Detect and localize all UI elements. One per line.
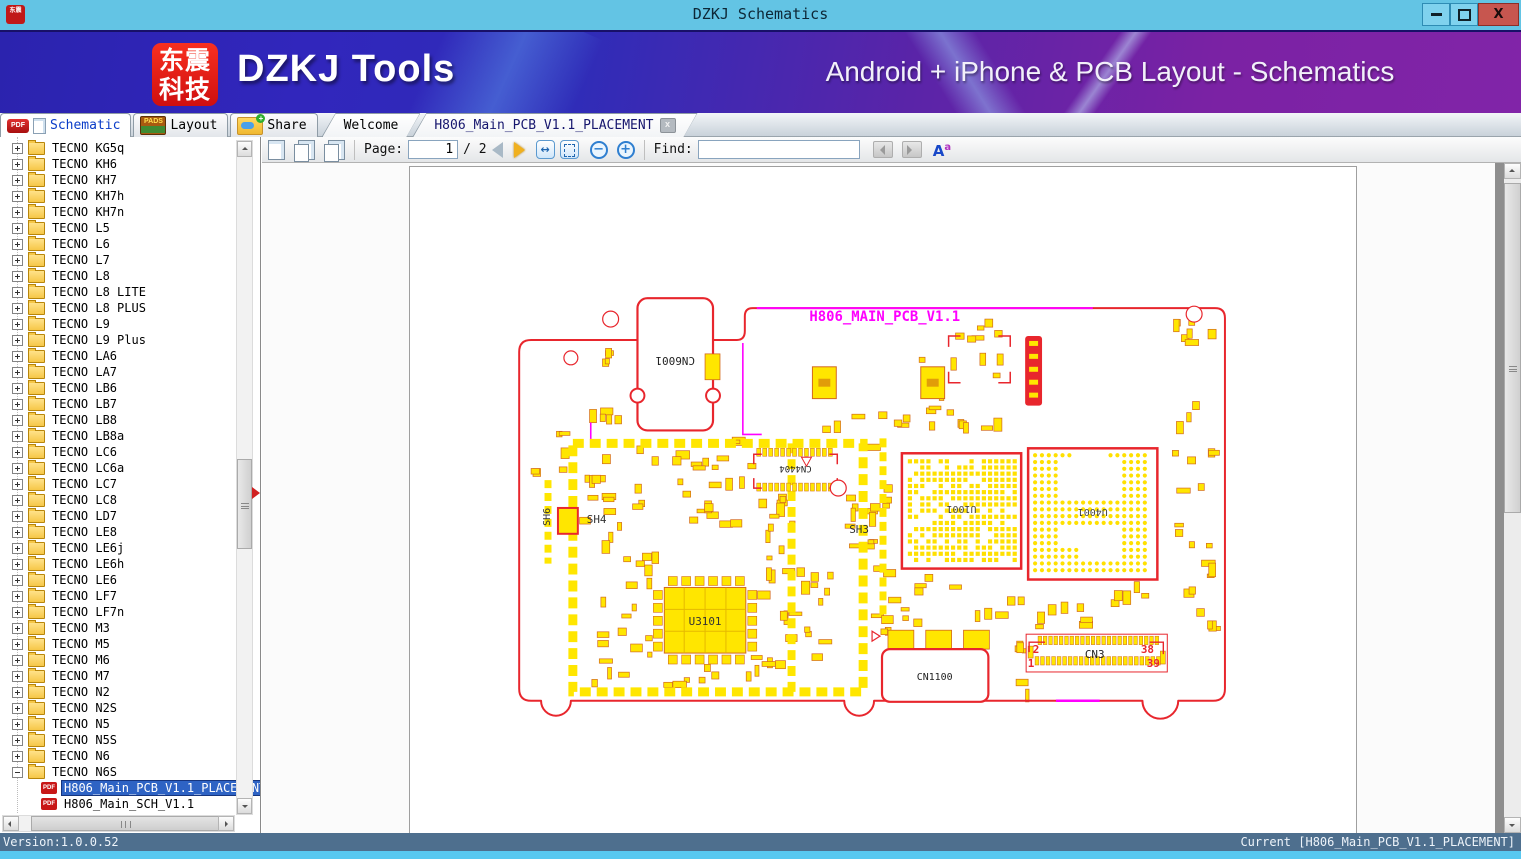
folder-icon — [28, 430, 45, 443]
folder-icon — [28, 542, 45, 555]
expand-icon[interactable] — [12, 159, 23, 170]
rotate-right-icon[interactable] — [328, 140, 345, 160]
folder-label: TECNO LC6 — [50, 445, 119, 459]
folder-icon — [28, 574, 45, 587]
expand-icon[interactable] — [12, 671, 23, 682]
folder-label: TECNO LC6a — [50, 461, 126, 475]
cn3-pin-2: 2 — [1033, 643, 1040, 656]
tree-item-folder[interactable]: TECNO LE8 — [0, 524, 236, 540]
expand-icon[interactable] — [12, 735, 23, 746]
label-cn1100: CN1100 — [917, 672, 953, 683]
folder-label: TECNO LE8 — [50, 525, 119, 539]
viewer-vertical-scrollbar[interactable] — [1504, 163, 1521, 833]
tree-item-folder[interactable]: TECNO KH7h — [0, 188, 236, 204]
previous-page-icon[interactable] — [492, 142, 503, 158]
expand-icon[interactable] — [12, 447, 23, 458]
label-sh4: SH4 — [587, 513, 607, 526]
find-previous-icon[interactable] — [873, 141, 893, 158]
pdf-file-icon: PDF — [41, 782, 57, 794]
expand-icon[interactable] — [12, 319, 23, 330]
viewer-scroll-thumb[interactable] — [1504, 183, 1521, 513]
label-cn3: CN3 — [1085, 648, 1105, 661]
find-label: Find: — [654, 142, 693, 157]
zoom-out-button[interactable]: − — [590, 141, 608, 159]
app-name: DZKJ Tools — [237, 48, 455, 91]
folder-label: TECNO KG5q — [50, 141, 126, 155]
folder-label: TECNO M7 — [50, 669, 112, 683]
folder-label: TECNO LA6 — [50, 349, 119, 363]
maximize-icon — [1458, 9, 1471, 21]
component-sh6-part — [558, 508, 578, 534]
tree-item-folder[interactable]: TECNO L8 PLUS — [0, 300, 236, 316]
folder-label: TECNO L5 — [50, 221, 112, 235]
folder-label: TECNO LD7 — [50, 509, 119, 523]
tree-item-folder[interactable]: TECNO N5S — [0, 732, 236, 748]
folder-label: TECNO M6 — [50, 653, 112, 667]
label-sh3: SH3 — [849, 523, 869, 536]
tree-item-folder[interactable]: TECNO LB8 — [0, 412, 236, 428]
expand-icon[interactable] — [12, 623, 23, 634]
tree-item-folder[interactable]: TECNO N2S — [0, 700, 236, 716]
collapse-icon[interactable] — [12, 767, 23, 778]
folder-icon — [28, 734, 45, 747]
pcb-placement-drawing: H806_MAIN_PCB_V1.1 CN6001 CN4404 U1001 U… — [410, 167, 1356, 833]
tree-item-file[interactable]: PDFH806_Main_SCH_V1.1 — [0, 796, 236, 812]
folder-icon — [28, 238, 45, 251]
scroll-down-icon[interactable] — [237, 798, 252, 814]
expand-icon[interactable] — [12, 351, 23, 362]
folder-icon — [28, 398, 45, 411]
folder-icon — [28, 318, 45, 331]
folder-label: TECNO N2S — [50, 701, 119, 715]
separator — [354, 140, 355, 160]
folder-icon — [28, 558, 45, 571]
folder-label: TECNO LC7 — [50, 477, 119, 491]
folder-icon — [28, 366, 45, 379]
tree-item-folder[interactable]: TECNO LF7 — [0, 588, 236, 604]
expand-icon[interactable] — [12, 751, 23, 762]
viewer-edge-shadow — [1495, 163, 1504, 833]
tree-item-folder[interactable]: TECNO LA6 — [0, 348, 236, 364]
folder-label: TECNO L8 PLUS — [50, 301, 148, 315]
viewer-scroll-down-icon[interactable] — [1504, 817, 1521, 833]
folder-icon — [28, 622, 45, 635]
label-sh6: SH6 — [542, 508, 553, 526]
tree-item-folder[interactable]: TECNO L7 — [0, 252, 236, 268]
folder-icon — [28, 270, 45, 283]
folder-icon — [28, 206, 45, 219]
folder-icon — [28, 382, 45, 395]
tree-item-folder[interactable]: TECNO KG5q — [0, 140, 236, 156]
bottom-strip — [0, 851, 1521, 859]
pdf-icon: PDF — [7, 119, 29, 133]
expand-icon[interactable] — [12, 335, 23, 346]
folder-icon — [28, 590, 45, 603]
fiducial-circle — [1186, 306, 1202, 322]
expand-icon[interactable] — [12, 511, 23, 522]
expand-icon[interactable] — [12, 239, 23, 250]
expand-icon[interactable] — [12, 415, 23, 426]
tree-item-folder[interactable]: TECNO L5 — [0, 220, 236, 236]
app-window: 东震 DZKJ Schematics X 东震 科技 DZKJ Tools An… — [0, 0, 1521, 859]
tab-schematic[interactable]: PDF Schematic — [0, 113, 131, 137]
tree-item-folder[interactable]: TECNO LE6h — [0, 556, 236, 572]
tree-item-folder[interactable]: TECNO LB6 — [0, 380, 236, 396]
scroll-left-icon[interactable] — [3, 816, 19, 831]
tree-item-folder[interactable]: TECNO KH6 — [0, 156, 236, 172]
brand-logo: 东震 科技 — [152, 43, 218, 106]
folder-label: TECNO L9 — [50, 317, 112, 331]
tree-item-folder[interactable]: TECNO L8 LITE — [0, 284, 236, 300]
label-cn4404: CN4404 — [779, 463, 811, 473]
pads-icon: PADS — [140, 116, 166, 135]
folder-label: TECNO N5 — [50, 717, 112, 731]
close-button[interactable]: X — [1478, 3, 1519, 26]
folder-label: TECNO LE6j — [50, 541, 126, 555]
board-title: H806_MAIN_PCB_V1.1 — [809, 309, 960, 325]
tree-item-folder[interactable]: TECNO KH7n — [0, 204, 236, 220]
pdf-page[interactable]: H806_MAIN_PCB_V1.1 CN6001 CN4404 U1001 U… — [409, 166, 1357, 833]
folder-label: TECNO KH7n — [50, 205, 126, 219]
folder-icon — [28, 638, 45, 651]
label-u4001: U4001 — [1078, 506, 1108, 517]
titlebar: 东震 DZKJ Schematics X — [0, 0, 1521, 30]
current-document-text: Current [H806_Main_PCB_V1.1_PLACEMENT] — [1240, 835, 1515, 849]
window-title: DZKJ Schematics — [0, 5, 1521, 23]
tree-item-folder[interactable]: TECNO L8 — [0, 268, 236, 284]
fit-page-icon — [564, 144, 575, 157]
folder-icon — [28, 478, 45, 491]
folder-icon — [28, 286, 45, 299]
tree-item-folder[interactable]: TECNO M5 — [0, 636, 236, 652]
expand-icon[interactable] — [12, 431, 23, 442]
tree-item-folder[interactable]: TECNO LB7 — [0, 396, 236, 412]
tree-item-folder[interactable]: TECNO KH7 — [0, 172, 236, 188]
tab-layout[interactable]: PADS Layout — [133, 113, 228, 137]
fiducial-circle — [603, 311, 619, 327]
tree-item-folder[interactable]: TECNO N5 — [0, 716, 236, 732]
expand-icon[interactable] — [12, 383, 23, 394]
tree-item-folder[interactable]: TECNO N6 — [0, 748, 236, 764]
folder-icon — [28, 526, 45, 539]
pin1-marker — [872, 631, 880, 641]
fit-page-button[interactable] — [560, 140, 579, 159]
tree-item-folder[interactable]: TECNO LF7n — [0, 604, 236, 620]
folder-label: TECNO LA7 — [50, 365, 119, 379]
expand-icon[interactable] — [12, 223, 23, 234]
folder-label: TECNO LF7n — [50, 605, 126, 619]
folder-label: TECNO KH7 — [50, 173, 119, 187]
cn3-pin-1: 1 — [1028, 657, 1035, 670]
expand-icon[interactable] — [12, 175, 23, 186]
tree-item-folder[interactable]: TECNO LC6 — [0, 444, 236, 460]
folder-label: TECNO L8 — [50, 269, 112, 283]
folder-label: TECNO M3 — [50, 621, 112, 635]
folder-label: TECNO L6 — [50, 237, 112, 251]
folder-icon — [28, 254, 45, 267]
folder-label: TECNO L8 LITE — [50, 285, 148, 299]
expand-icon[interactable] — [12, 687, 23, 698]
tree-item-folder[interactable]: TECNO LB8a — [0, 428, 236, 444]
folder-icon — [28, 158, 45, 171]
folder-icon — [28, 190, 45, 203]
folder-icon — [28, 494, 45, 507]
cn3-pin-39: 39 — [1147, 657, 1160, 670]
viewer-toolbar: Page: / 2 ↔ − + Find: Aa — [262, 137, 1521, 163]
tree-item-folder[interactable]: TECNO L9 Plus — [0, 332, 236, 348]
folder-label: TECNO LB8a — [50, 429, 126, 443]
folder-icon — [28, 654, 45, 667]
tree-item-folder[interactable]: TECNO LE6 — [0, 572, 236, 588]
folder-icon — [28, 718, 45, 731]
minimize-icon — [1431, 13, 1442, 16]
tree-item-folder[interactable]: TECNO LC6a — [0, 460, 236, 476]
expand-icon[interactable] — [12, 543, 23, 554]
match-case-icon[interactable]: Aa — [933, 140, 951, 159]
expand-icon[interactable] — [12, 255, 23, 266]
folder-label: TECNO LB6 — [50, 381, 119, 395]
folder-label: TECNO N6S — [50, 765, 119, 779]
tree-item-folder[interactable]: TECNO M3 — [0, 620, 236, 636]
folder-icon — [28, 222, 45, 235]
separator — [644, 140, 645, 160]
tree-item-folder[interactable]: TECNO L9 — [0, 316, 236, 332]
folder-label: TECNO L7 — [50, 253, 112, 267]
single-page-icon[interactable] — [268, 140, 285, 160]
expand-icon[interactable] — [12, 191, 23, 202]
tree-item-file[interactable]: PDFH806_Main_PCB_V1.1_PLACEMENT — [0, 780, 236, 796]
tree-item-folder[interactable]: TECNO M7 — [0, 668, 236, 684]
tree-item-folder[interactable]: TECNO LC8 — [0, 492, 236, 508]
rotate-left-icon[interactable] — [298, 140, 315, 160]
tree-item-folder[interactable]: TECNO LD7 — [0, 508, 236, 524]
tree-hscroll-thumb[interactable] — [31, 816, 219, 831]
folder-icon — [28, 446, 45, 459]
page-total: / 2 — [463, 142, 486, 157]
expand-icon[interactable] — [12, 639, 23, 650]
expand-icon[interactable] — [12, 143, 23, 154]
document-tabs: Welcome H806_Main_PCB_V1.1_PLACEMENT x — [330, 113, 698, 136]
fiducial-circle — [830, 480, 846, 496]
expand-icon[interactable] — [12, 399, 23, 410]
folder-label: TECNO KH7h — [50, 189, 126, 203]
tree-scroll-thumb[interactable] — [237, 459, 252, 549]
folder-label: TECNO L9 Plus — [50, 333, 148, 347]
expand-icon[interactable] — [12, 303, 23, 314]
scroll-right-icon[interactable] — [218, 816, 234, 831]
expand-icon[interactable] — [12, 559, 23, 570]
label-u1001: U1001 — [947, 503, 977, 514]
folder-label: TECNO LB8 — [50, 413, 119, 427]
expand-icon[interactable] — [12, 527, 23, 538]
expand-icon[interactable] — [12, 719, 23, 730]
folder-label: TECNO LF7 — [50, 589, 119, 603]
expand-icon[interactable] — [12, 607, 23, 618]
expand-icon[interactable] — [12, 495, 23, 506]
tree-horizontal-scrollbar[interactable] — [2, 815, 235, 832]
folder-icon — [28, 174, 45, 187]
folder-label: TECNO LB7 — [50, 397, 119, 411]
tree-item-folder[interactable]: TECNO N2 — [0, 684, 236, 700]
minimize-button[interactable] — [1422, 3, 1450, 26]
folder-icon — [28, 686, 45, 699]
status-bar: Version:1.0.0.52 Current [H806_Main_PCB_… — [0, 833, 1521, 851]
cn3-pin-38: 38 — [1141, 643, 1154, 656]
folder-label: TECNO N6 — [50, 749, 112, 763]
folder-label: TECNO N5S — [50, 733, 119, 747]
page-number-input[interactable] — [408, 140, 458, 159]
folder-icon — [28, 750, 45, 763]
tab-row: PDF Schematic PADS Layout + Share Welcom… — [0, 113, 1521, 137]
file-label: H806_Main_SCH_V1.1 — [62, 797, 196, 811]
maximize-button[interactable] — [1450, 3, 1478, 26]
page-label: Page: — [364, 142, 403, 157]
folder-icon — [28, 414, 45, 427]
plus-icon: + — [256, 114, 265, 123]
folder-label: TECNO LE6 — [50, 573, 119, 587]
find-input[interactable] — [698, 140, 860, 159]
expand-icon[interactable] — [12, 367, 23, 378]
expand-icon[interactable] — [12, 207, 23, 218]
tree-vertical-scrollbar[interactable] — [236, 140, 253, 815]
next-page-icon[interactable] — [514, 142, 525, 158]
folder-icon — [28, 334, 45, 347]
expand-icon[interactable] — [12, 591, 23, 602]
folder-icon — [28, 510, 45, 523]
page-icon — [33, 118, 46, 134]
folder-label: TECNO N2 — [50, 685, 112, 699]
tree-list: TECNO KG5qTECNO KH6TECNO KH7TECNO KH7hTE… — [0, 140, 236, 812]
scroll-up-icon[interactable] — [237, 141, 252, 157]
banner-tagline: Android + iPhone & PCB Layout - Schemati… — [770, 56, 1450, 88]
expand-icon[interactable] — [12, 655, 23, 666]
viewer-scroll-up-icon[interactable] — [1504, 163, 1521, 179]
label-cn6001: CN6001 — [656, 354, 695, 367]
fit-width-button[interactable]: ↔ — [536, 140, 555, 159]
folder-icon — [28, 606, 45, 619]
folder-label: TECNO LE6h — [50, 557, 126, 571]
doc-tab-placement[interactable]: H806_Main_PCB_V1.1_PLACEMENT x — [412, 113, 697, 137]
folder-label: TECNO KH6 — [50, 157, 119, 171]
tab-share[interactable]: + Share — [230, 113, 317, 137]
pdf-file-icon: PDF — [41, 798, 57, 810]
expand-icon[interactable] — [12, 271, 23, 282]
version-text: Version:1.0.0.52 — [3, 835, 119, 849]
document-viewer: H806_MAIN_PCB_V1.1 CN6001 CN4404 U1001 U… — [262, 163, 1521, 833]
share-folder-icon: + — [237, 117, 263, 135]
silk-accent-line — [743, 343, 762, 434]
expand-icon[interactable] — [12, 479, 23, 490]
tree-item-folder[interactable]: TECNO LA7 — [0, 364, 236, 380]
folder-icon — [28, 766, 45, 779]
file-label: H806_Main_PCB_V1.1_PLACEMENT — [62, 781, 261, 795]
folder-icon — [28, 462, 45, 475]
tree-item-folder[interactable]: TECNO LC7 — [0, 476, 236, 492]
find-next-icon[interactable] — [902, 141, 922, 158]
folder-icon — [28, 702, 45, 715]
expand-icon[interactable] — [12, 703, 23, 714]
expand-icon[interactable] — [12, 575, 23, 586]
close-icon: X — [1493, 7, 1503, 22]
folder-label: TECNO M5 — [50, 637, 112, 651]
fiducial-circle — [564, 351, 578, 365]
schematic-tree-panel: TECNO KG5qTECNO KH6TECNO KH7TECNO KH7hTE… — [0, 137, 261, 833]
tree-item-folder[interactable]: TECNO L6 — [0, 236, 236, 252]
doc-tab-close-icon[interactable]: x — [660, 118, 676, 133]
zoom-in-button[interactable]: + — [617, 141, 635, 159]
folder-icon — [28, 302, 45, 315]
folder-icon — [28, 350, 45, 363]
folder-label: TECNO LC8 — [50, 493, 119, 507]
tree-item-folder[interactable]: TECNO LE6j — [0, 540, 236, 556]
folder-icon — [28, 670, 45, 683]
cloud-icon — [241, 122, 254, 129]
banner: 东震 科技 DZKJ Tools Android + iPhone & PCB … — [0, 30, 1521, 113]
label-u3101: U3101 — [689, 615, 722, 628]
expand-icon[interactable] — [12, 287, 23, 298]
expand-icon[interactable] — [12, 463, 23, 474]
tree-item-folder[interactable]: TECNO M6 — [0, 652, 236, 668]
doc-tab-welcome[interactable]: Welcome — [322, 113, 421, 137]
tree-item-folder[interactable]: TECNO N6S — [0, 764, 236, 780]
folder-icon — [28, 142, 45, 155]
